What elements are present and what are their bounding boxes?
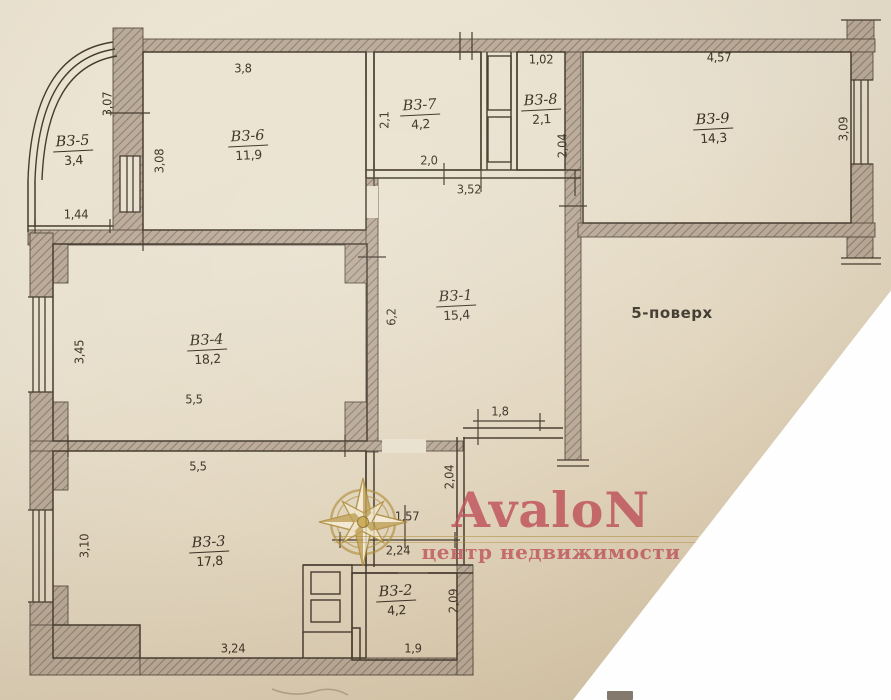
room-label-ВЗ-3: ВЗ-317,8 — [188, 530, 230, 569]
floor-note-label: 5-поверх — [631, 304, 712, 322]
room-label-ВЗ-6: ВЗ-611,9 — [227, 124, 269, 163]
room-label-ВЗ-5: ВЗ-53,4 — [52, 129, 94, 168]
dimension-label: 3,45 — [72, 340, 87, 365]
dimension-label: 2,09 — [446, 589, 461, 614]
dimension-label: 1,44 — [64, 207, 89, 222]
dimension-label: 2,04 — [555, 134, 570, 159]
dimension-label: 1,02 — [529, 52, 554, 67]
room-label-ВЗ-4: ВЗ-418,2 — [186, 328, 228, 367]
dimension-label: 3,8 — [234, 61, 251, 76]
paper-chip — [607, 691, 633, 700]
room-label-ВЗ-9: ВЗ-914,3 — [692, 107, 734, 146]
dimension-label: 2,1 — [377, 111, 392, 128]
dimension-label: 1,9 — [404, 641, 421, 656]
dimension-label: 1,57 — [395, 509, 420, 524]
dimension-label: 1,8 — [491, 404, 508, 419]
dimension-label: 6,2 — [384, 308, 399, 325]
dimension-label: 3,52 — [457, 182, 482, 197]
dimension-label: 3,09 — [836, 117, 851, 142]
floorplan-photo: 3,83,073,081,442,12,03,521,022,044,573,0… — [0, 0, 891, 700]
dimension-label: 2,24 — [386, 543, 411, 558]
dimension-label: 2,04 — [442, 465, 457, 490]
dimension-label: 5,5 — [185, 392, 202, 407]
dimension-label: 4,57 — [707, 50, 732, 65]
dimension-label: 3,08 — [152, 149, 167, 174]
room-label-ВЗ-8: ВЗ-82,1 — [520, 88, 562, 127]
dimension-label: 5,5 — [189, 459, 206, 474]
room-label-ВЗ-7: ВЗ-74,2 — [399, 93, 441, 132]
dimension-label: 2,0 — [420, 153, 437, 168]
dimension-label: 3,07 — [100, 92, 115, 117]
dimension-label: 3,24 — [221, 641, 246, 656]
dimension-label: 3,10 — [77, 534, 92, 559]
room-label-ВЗ-2: ВЗ-24,2 — [375, 579, 417, 618]
room-label-ВЗ-1: ВЗ-115,4 — [435, 284, 477, 323]
